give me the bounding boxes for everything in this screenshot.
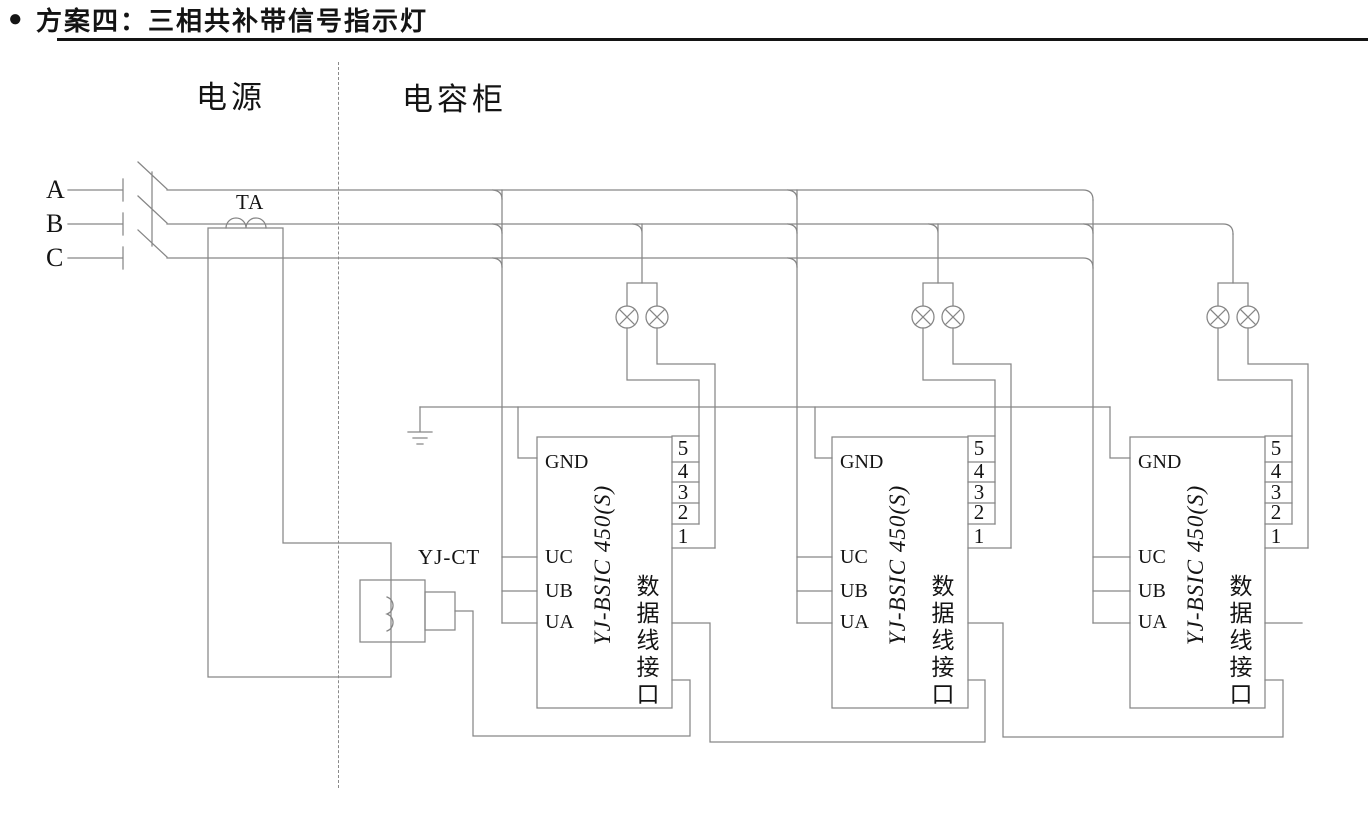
- module-1-pin-uc: UC: [545, 547, 573, 567]
- phase-line-b: [68, 224, 1233, 234]
- module-1-data-port-label: 数据线接口: [634, 574, 657, 714]
- module-3-terminal-4: 4: [1267, 461, 1285, 482]
- module-3-data-port-label: 数据线接口: [1227, 574, 1250, 714]
- ta-current-transformer: [208, 218, 391, 677]
- module-3-pin-gnd: GND: [1138, 452, 1181, 472]
- indicator-lamp-icon: [616, 306, 638, 328]
- module-2-pin-ua: UA: [840, 612, 869, 632]
- diagram-linework: [0, 0, 1368, 831]
- phase-line-c: [68, 258, 1093, 268]
- module-2-model: YJ-BSIC 450(S): [886, 455, 910, 675]
- module-2-pin-ub: UB: [840, 581, 868, 601]
- indicator-lamp-icon: [646, 306, 668, 328]
- indicator-lamp-icon: [1207, 306, 1229, 328]
- disconnect-switch: [123, 162, 167, 269]
- module-3-terminal-5: 5: [1267, 438, 1285, 459]
- phase-line-a: [68, 190, 1093, 200]
- module-2-pin-uc: UC: [840, 547, 868, 567]
- indicator-lamp-icon: [912, 306, 934, 328]
- module-1-pin-gnd: GND: [545, 452, 588, 472]
- module-3-terminal-1: 1: [1267, 526, 1285, 547]
- indicator-lamp-icon: [942, 306, 964, 328]
- module-2-terminal-5: 5: [970, 438, 988, 459]
- module-2-pin-gnd: GND: [840, 452, 883, 472]
- module-2-terminal-4: 4: [970, 461, 988, 482]
- wiring-diagram-page: ● 方案四：三相共补带信号指示灯 电源 电容柜 A B C TA YJ-CT: [0, 0, 1368, 831]
- module-1-model: YJ-BSIC 450(S): [591, 455, 615, 675]
- module-1-terminal-4: 4: [674, 461, 692, 482]
- module-3-model: YJ-BSIC 450(S): [1184, 455, 1208, 675]
- module-1-terminal-1: 1: [674, 526, 692, 547]
- module-3-pin-uc: UC: [1138, 547, 1166, 567]
- module-1-pin-ua: UA: [545, 612, 574, 632]
- module-3-pin-ub: UB: [1138, 581, 1166, 601]
- module-3-terminal-2: 2: [1267, 502, 1285, 523]
- module-2-data-port-label: 数据线接口: [929, 574, 952, 714]
- module-3-pin-ua: UA: [1138, 612, 1167, 632]
- module-1-terminal-5: 5: [674, 438, 692, 459]
- module-1-terminal-2: 2: [674, 502, 692, 523]
- module-2-terminal-1: 1: [970, 526, 988, 547]
- indicator-lamp-icon: [1237, 306, 1259, 328]
- earth-ground-icon: [408, 407, 432, 444]
- module-2-terminal-2: 2: [970, 502, 988, 523]
- module-1-pin-ub: UB: [545, 581, 573, 601]
